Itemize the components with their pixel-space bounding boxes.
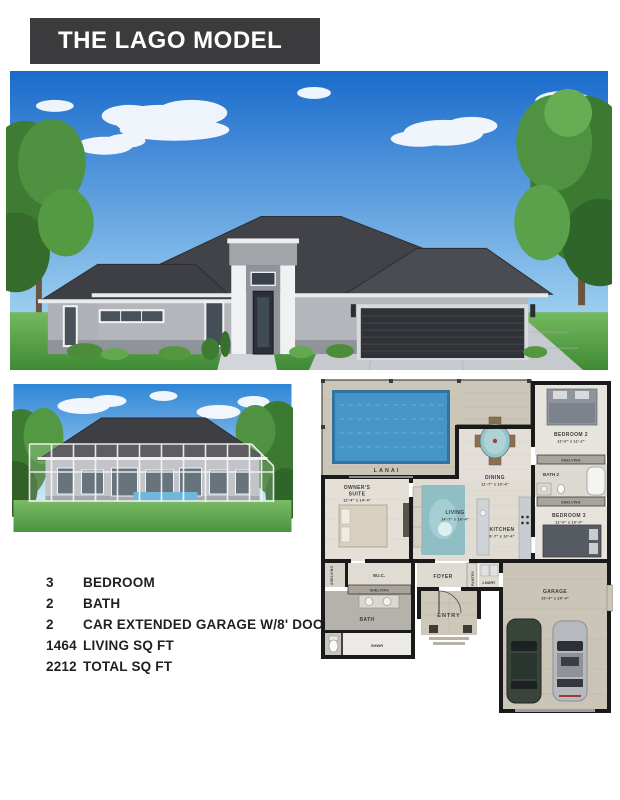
sliding-door <box>349 476 413 478</box>
rear-exterior-rendering <box>12 384 293 532</box>
kitchen-counter <box>519 497 531 561</box>
front-exterior-rendering <box>6 71 612 370</box>
floor-plan: LANAI <box>321 379 613 719</box>
room-label-owners-suite-2: SUITE <box>349 492 366 498</box>
front-rendering-canvas <box>6 71 612 370</box>
spec-list: 3 BEDROOM 2 BATH 2 CAR EXTENDED GARAGE W… <box>46 575 343 680</box>
room-dims-garage: 19'-4" x 20'-4" <box>541 597 569 601</box>
bedroom2-furniture <box>547 389 597 425</box>
spec-value: 1464 <box>46 638 83 653</box>
room-label-entry: ENTRY <box>437 613 460 619</box>
porch-column-left <box>429 625 438 633</box>
sofa <box>413 487 422 547</box>
toilet <box>329 640 338 652</box>
room-label-living: LIVING <box>445 510 464 516</box>
room-label-dining: DINING <box>485 475 505 481</box>
room-dims-bedroom3: 12'-0" x 10'-0" <box>555 521 583 525</box>
entry-tower <box>229 243 297 265</box>
room-label-pantry: PANTRY <box>471 570 475 586</box>
spec-value: 2 <box>46 617 83 632</box>
spec-value: 2212 <box>46 659 83 674</box>
spec-row-total-sqft: 2212 TOTAL SQ FT <box>46 659 343 674</box>
floor-plan-canvas: LANAI <box>321 379 613 719</box>
entry-tower-cap <box>227 238 299 243</box>
room-label-bath2: BATH 2 <box>543 472 559 477</box>
room-dims-kitchen: 9'-7" x 10'-4" <box>489 535 515 539</box>
spec-label: BEDROOM <box>83 575 155 590</box>
room-dims-dining: 11'-7" x 10'-4" <box>481 483 509 487</box>
room-label-owners-suite-1: OWNER'S <box>344 485 371 491</box>
car-silver <box>553 621 587 701</box>
shelving-label: SHELVING <box>561 501 581 505</box>
entry-step-2 <box>433 642 465 645</box>
spec-row-living-sqft: 1464 LIVING SQ FT <box>46 638 343 653</box>
window-horizontal <box>100 310 164 322</box>
spec-label: LIVING SQ FT <box>83 638 174 653</box>
spec-row-bedroom: 3 BEDROOM <box>46 575 343 590</box>
room-label-bedroom2: BEDROOM 2 <box>554 432 588 438</box>
rear-rendering-canvas <box>12 384 293 532</box>
lawn <box>14 500 292 532</box>
entry-column-right <box>280 265 295 354</box>
screen-enclosure <box>30 444 274 502</box>
sconce-left <box>351 304 356 317</box>
spec-label: BATH <box>83 596 120 611</box>
room-label-kitchen: KITCHEN <box>489 527 514 533</box>
shelving-label-vertical: SHELVING <box>330 565 334 585</box>
room-label-wic: W.I.C. <box>373 573 385 578</box>
spec-row-garage: 2 CAR EXTENDED GARAGE W/8' DOORS <box>46 617 343 632</box>
room-label-garage: GARAGE <box>543 589 568 595</box>
spec-row-bath: 2 BATH <box>46 596 343 611</box>
room-dims-bedroom2: 12'-0" x 11'-2" <box>557 440 585 444</box>
shelving-label: SHELVING <box>370 589 390 593</box>
room-dims-owners-suite: 12'-4" x 14'-4" <box>343 499 371 503</box>
room-label-bedroom3: BEDROOM 3 <box>552 513 586 519</box>
spec-value: 2 <box>46 596 83 611</box>
pool <box>335 393 447 461</box>
kitchen-island <box>477 499 489 555</box>
garage-side-landing <box>607 585 613 611</box>
room-dims-living: 14'-7" x 16'-4" <box>441 518 469 522</box>
room-label-bath: BATH <box>359 617 374 623</box>
tub <box>587 467 605 495</box>
room-label-shwr: SHWR <box>371 643 383 648</box>
porch-column-right <box>463 625 472 633</box>
owners-dresser <box>403 503 409 537</box>
room-label-foyer: FOYER <box>433 574 452 580</box>
sconce-right <box>530 304 535 317</box>
spec-label: TOTAL SQ FT <box>83 659 172 674</box>
fascia-main <box>92 293 548 297</box>
entry-step-1 <box>429 637 469 640</box>
room-label-lanai: LANAI <box>374 468 401 474</box>
toilet2 <box>558 485 565 494</box>
car-dark-green <box>507 619 541 703</box>
spec-value: 3 <box>46 575 83 590</box>
spec-label: CAR EXTENDED GARAGE W/8' DOORS <box>83 617 343 632</box>
garage-door-line <box>515 709 595 712</box>
centerpiece <box>493 439 497 443</box>
front-door-glass <box>257 297 269 347</box>
shelving-label: SHELVING <box>561 459 581 463</box>
bedroom3-furniture <box>543 525 601 557</box>
page-title: THE LAGO MODEL <box>58 27 282 55</box>
transom-window <box>251 272 275 285</box>
model-title-banner: THE LAGO MODEL <box>30 18 320 64</box>
entry-column-left <box>231 265 246 354</box>
window-slit-vertical <box>64 306 77 346</box>
room-label-lndry: LNDRY <box>483 581 496 585</box>
